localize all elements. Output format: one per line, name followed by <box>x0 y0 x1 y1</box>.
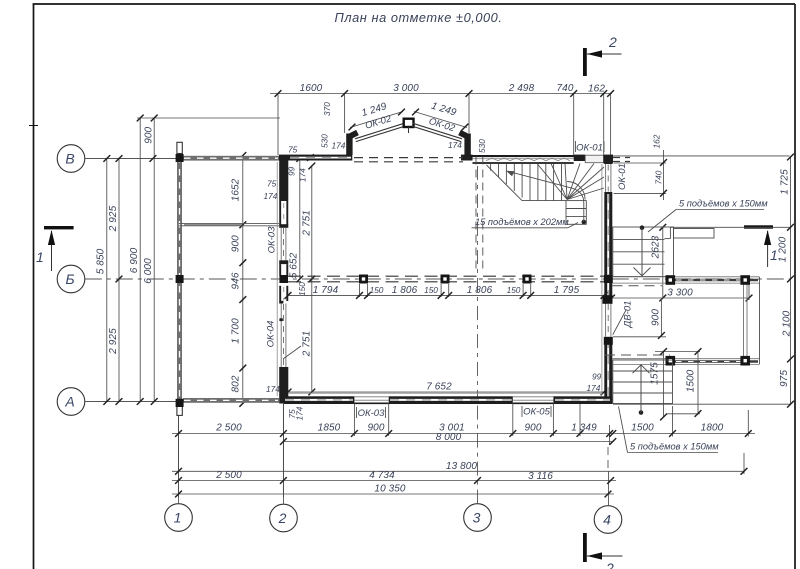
svg-text:1 794: 1 794 <box>313 285 339 296</box>
svg-text:2 925: 2 925 <box>108 205 119 232</box>
svg-text:1 806: 1 806 <box>392 285 418 296</box>
svg-text:150: 150 <box>297 282 307 296</box>
svg-text:150: 150 <box>370 285 384 295</box>
svg-text:7 652: 7 652 <box>426 382 452 393</box>
svg-text:ОК-03: ОК-03 <box>267 226 278 253</box>
svg-text:150: 150 <box>507 285 521 295</box>
svg-text:1 349: 1 349 <box>571 423 597 434</box>
svg-text:1 806: 1 806 <box>467 285 493 296</box>
svg-text:150: 150 <box>424 285 438 295</box>
svg-text:900: 900 <box>368 423 385 434</box>
svg-text:3 116: 3 116 <box>528 471 553 482</box>
svg-text:174: 174 <box>295 406 305 420</box>
svg-text:5 850: 5 850 <box>96 248 107 274</box>
svg-text:5 подъёмов х 150мм: 5 подъёмов х 150мм <box>630 442 719 452</box>
svg-text:174: 174 <box>266 384 280 394</box>
svg-text:900: 900 <box>231 235 242 252</box>
svg-text:1500: 1500 <box>686 369 697 392</box>
svg-text:2: 2 <box>605 560 614 569</box>
svg-text:13 800: 13 800 <box>446 461 478 472</box>
svg-text:162: 162 <box>652 134 662 148</box>
svg-text:4: 4 <box>603 512 611 528</box>
svg-text:740: 740 <box>654 170 664 184</box>
svg-text:1 725: 1 725 <box>780 169 791 195</box>
svg-text:6 900: 6 900 <box>129 247 140 273</box>
svg-text:8 000: 8 000 <box>436 432 462 443</box>
svg-text:ОК-01: ОК-01 <box>617 163 628 190</box>
svg-text:Б: Б <box>65 271 74 287</box>
svg-text:900: 900 <box>144 126 155 143</box>
svg-text:ОК-01: ОК-01 <box>576 143 603 154</box>
svg-text:900: 900 <box>651 309 662 326</box>
svg-text:174: 174 <box>332 141 346 151</box>
svg-text:740: 740 <box>557 83 574 94</box>
svg-text:В: В <box>65 151 74 167</box>
svg-text:174: 174 <box>264 191 278 201</box>
svg-text:99: 99 <box>592 372 602 382</box>
svg-text:1575: 1575 <box>650 362 661 385</box>
svg-text:946: 946 <box>231 272 242 289</box>
svg-text:ОК-03: ОК-03 <box>358 408 385 419</box>
svg-text:2: 2 <box>608 34 617 50</box>
svg-text:2 751: 2 751 <box>302 210 313 237</box>
svg-text:2 500: 2 500 <box>215 470 242 481</box>
svg-text:3: 3 <box>473 510 481 526</box>
svg-text:5 652: 5 652 <box>288 252 299 278</box>
svg-text:ОК-05: ОК-05 <box>523 407 550 418</box>
svg-text:1: 1 <box>36 249 44 265</box>
svg-text:2623: 2623 <box>651 235 662 259</box>
svg-text:2: 2 <box>278 510 287 526</box>
svg-text:1800: 1800 <box>701 423 724 434</box>
svg-text:15 подъёмов х 202мм: 15 подъёмов х 202мм <box>475 217 569 227</box>
svg-text:1 200: 1 200 <box>778 236 789 262</box>
svg-text:1850: 1850 <box>318 423 341 434</box>
svg-text:3 300: 3 300 <box>667 288 693 299</box>
svg-text:10 350: 10 350 <box>374 484 406 495</box>
svg-text:2 751: 2 751 <box>302 331 313 358</box>
svg-text:1652: 1652 <box>231 178 242 201</box>
svg-text:1: 1 <box>174 510 182 526</box>
svg-text:1600: 1600 <box>300 83 323 94</box>
svg-text:162: 162 <box>588 84 605 95</box>
svg-text:2 925: 2 925 <box>108 328 119 355</box>
svg-text:ДВ-01: ДВ-01 <box>623 301 634 329</box>
svg-text:75: 75 <box>267 179 277 189</box>
svg-text:А: А <box>64 394 74 410</box>
svg-text:900: 900 <box>525 423 542 434</box>
svg-text:1 795: 1 795 <box>554 285 580 296</box>
svg-text:530: 530 <box>320 134 330 148</box>
svg-text:530: 530 <box>477 139 487 153</box>
svg-text:75: 75 <box>288 145 298 155</box>
svg-text:5 подъёмов х 150мм: 5 подъёмов х 150мм <box>679 199 768 209</box>
svg-text:1 700: 1 700 <box>231 318 242 344</box>
svg-text:802: 802 <box>231 375 242 392</box>
svg-text:174: 174 <box>587 383 601 393</box>
svg-text:2 500: 2 500 <box>215 423 242 434</box>
svg-text:370: 370 <box>322 102 332 116</box>
svg-text:1500: 1500 <box>631 423 654 434</box>
svg-text:ОК-04: ОК-04 <box>266 321 277 348</box>
svg-text:975: 975 <box>779 370 790 387</box>
svg-text:2 498: 2 498 <box>508 83 535 94</box>
svg-text:План на отметке ±0,000.: План на отметке ±0,000. <box>335 10 503 25</box>
svg-text:6 000: 6 000 <box>143 258 154 284</box>
svg-text:3 000: 3 000 <box>393 83 419 94</box>
svg-text:174: 174 <box>298 168 308 182</box>
svg-text:2 100: 2 100 <box>782 310 793 337</box>
svg-text:4 734: 4 734 <box>369 470 395 481</box>
